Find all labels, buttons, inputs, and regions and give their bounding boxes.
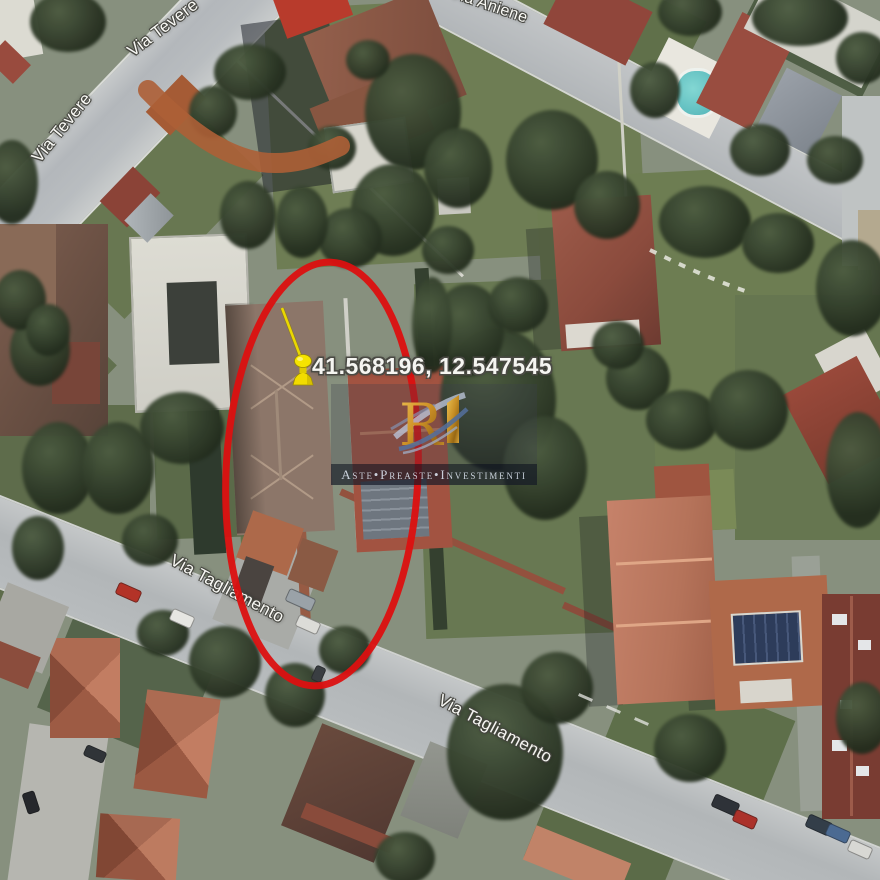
tree-canopy: [189, 626, 261, 698]
tree-canopy: [646, 390, 718, 450]
tree-canopy: [122, 514, 178, 566]
tree-canopy: [574, 171, 640, 239]
watermark: R Aste•Preaste•Investimenti: [331, 384, 537, 485]
tree-canopy: [220, 181, 276, 249]
tree-canopy: [816, 240, 880, 336]
roof-panels: [361, 478, 430, 539]
skylight: [858, 640, 871, 650]
tree-canopy: [424, 128, 492, 208]
inner-courtyard: [167, 281, 220, 365]
tree-canopy: [26, 304, 70, 356]
tree-canopy: [730, 124, 790, 176]
tree-canopy: [140, 392, 224, 464]
watermark-brand: Aste•Preaste•Investimenti: [331, 464, 537, 485]
tree-canopy: [630, 62, 680, 118]
tree-canopy: [422, 226, 474, 274]
tree-canopy: [12, 516, 64, 580]
tree-canopy: [319, 626, 371, 674]
satellite-map: Via Tevere Via Tevere Via Aniene Via Tag…: [0, 0, 880, 880]
tree-canopy: [836, 32, 880, 84]
tree-canopy: [346, 40, 390, 80]
hip-roof-house: [133, 689, 220, 798]
roof-terrace: [739, 679, 792, 704]
skylight: [832, 614, 847, 625]
tree-canopy: [521, 652, 593, 724]
tree-canopy: [807, 136, 863, 184]
tree-canopy: [654, 714, 726, 782]
stepping-stone-path: [638, 238, 768, 313]
tree-canopy: [276, 186, 328, 258]
watermark-logo: R: [389, 385, 479, 461]
tree-canopy: [708, 370, 788, 450]
hip-roof-house: [96, 813, 180, 880]
tree-canopy: [836, 682, 880, 754]
building-roof: [607, 495, 722, 704]
hip-roof-house: [50, 638, 120, 738]
coordinates-label: 41.568196, 12.547545: [312, 353, 552, 380]
brick-path: [130, 78, 360, 188]
tree-canopy: [592, 321, 644, 369]
tree-canopy: [488, 277, 548, 333]
solar-panels: [731, 610, 804, 666]
skylight: [856, 766, 869, 776]
tree-canopy: [375, 832, 435, 880]
